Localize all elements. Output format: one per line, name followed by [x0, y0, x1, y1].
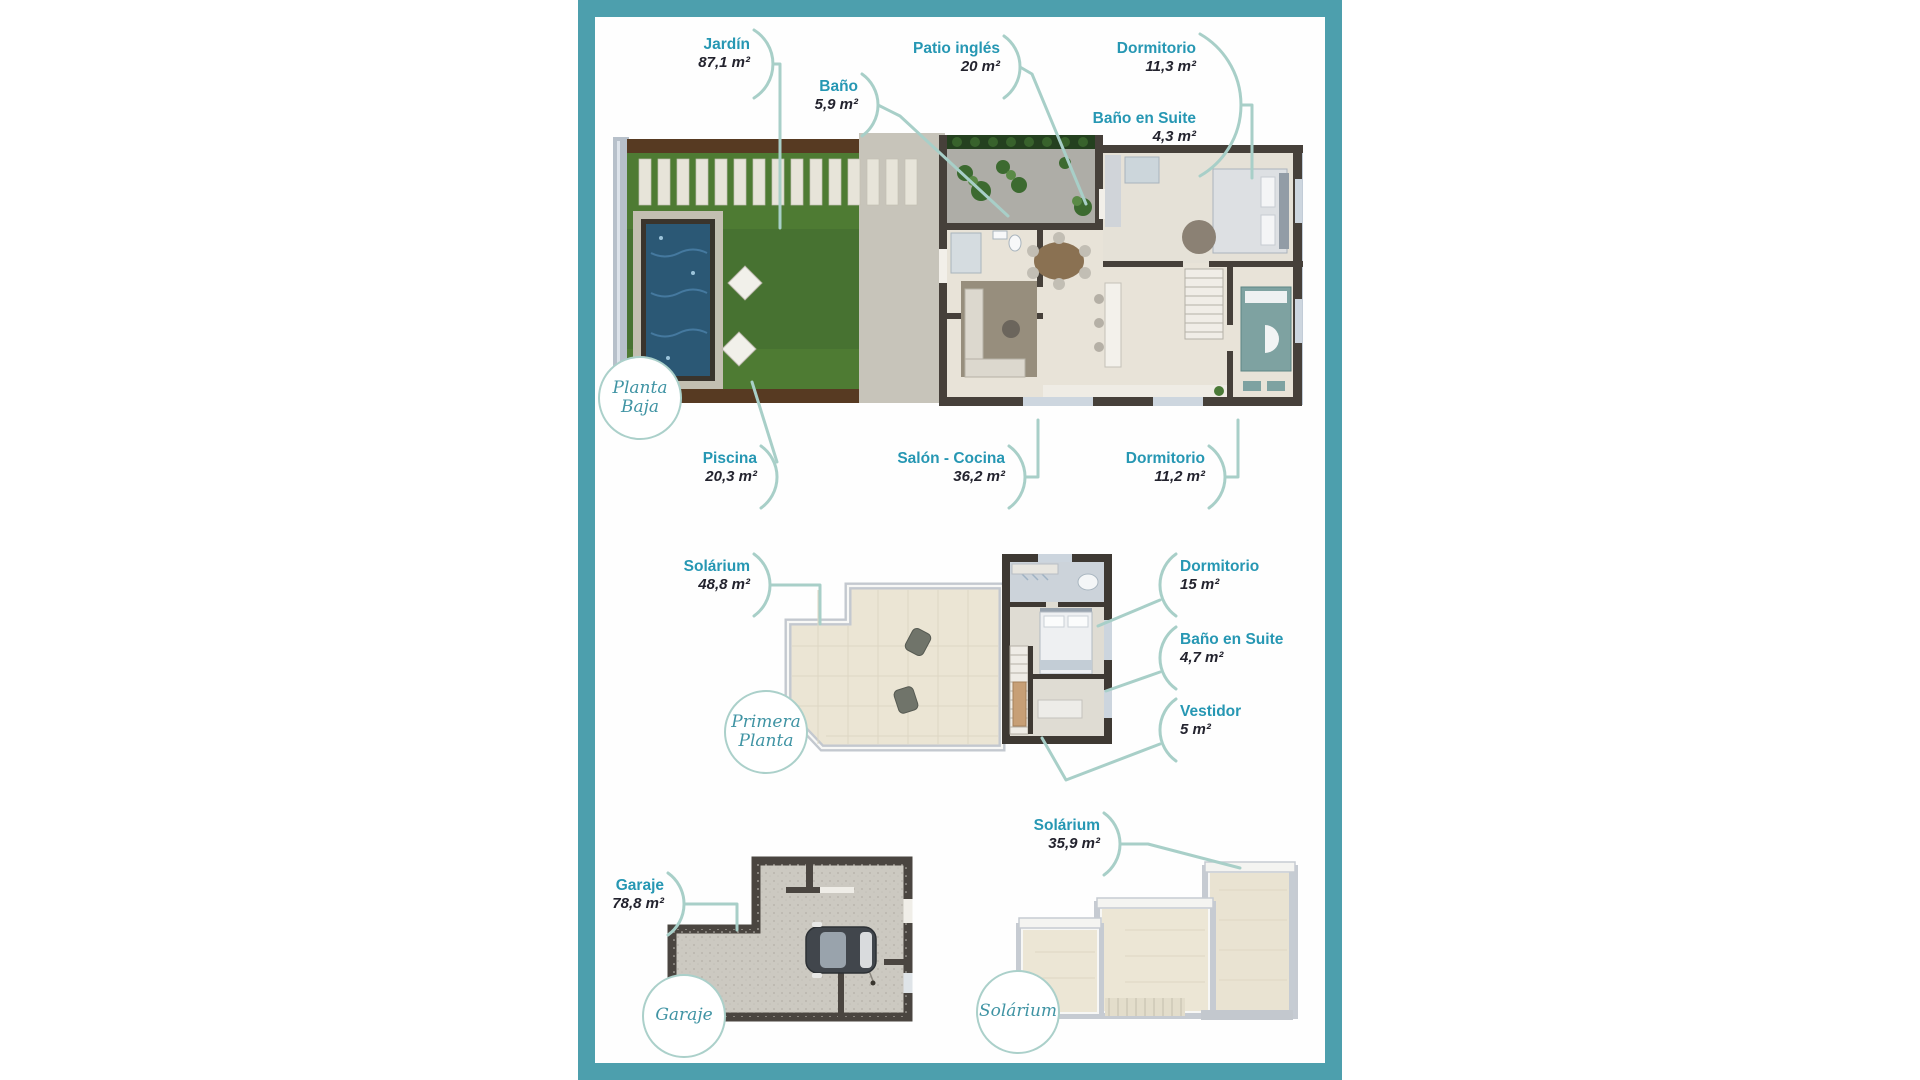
label-piscina-area: 20,3 m²: [617, 468, 757, 486]
upper-rooms: [1002, 554, 1112, 744]
label-solarium-488-name: Solárium: [610, 558, 750, 576]
label-solarium-488: Solárium 48,8 m²: [610, 558, 750, 594]
garden-path-slabs: [639, 159, 917, 205]
label-patio-ingles-name: Patio inglés: [840, 40, 1000, 58]
label-dormitorio-112: Dormitorio 11,2 m²: [1065, 450, 1205, 486]
label-garaje-name: Garaje: [524, 877, 664, 895]
primera-planta-floor-plan: [770, 550, 1115, 755]
label-bano: Baño 5,9 m²: [718, 78, 858, 114]
label-dormitorio-112-name: Dormitorio: [1065, 450, 1205, 468]
label-piscina: Piscina 20,3 m²: [617, 450, 757, 486]
solarium-terraces: [1019, 862, 1295, 1020]
label-vestidor: Vestidor 5 m²: [1180, 703, 1320, 739]
badge-planta-baja-line1: Planta: [613, 379, 668, 398]
label-dormitorio-15: Dormitorio 15 m²: [1180, 558, 1330, 594]
label-piscina-name: Piscina: [617, 450, 757, 468]
label-salon-cocina-name: Salón - Cocina: [845, 450, 1005, 468]
label-solarium-359-area: 35,9 m²: [960, 835, 1100, 853]
label-patio-ingles: Patio inglés 20 m²: [840, 40, 1000, 76]
label-bano-en-suite-47: Baño en Suite 4,7 m²: [1180, 631, 1340, 667]
label-dormitorio-15-name: Dormitorio: [1180, 558, 1330, 576]
label-bano-en-suite-47-name: Baño en Suite: [1180, 631, 1340, 649]
label-dormitorio-15-area: 15 m²: [1180, 576, 1330, 594]
label-garaje: Garaje 78,8 m²: [524, 877, 664, 913]
label-solarium-359: Solárium 35,9 m²: [960, 817, 1100, 853]
label-salon-cocina-area: 36,2 m²: [845, 468, 1005, 486]
badge-primera-planta-line2: Planta: [739, 732, 794, 751]
label-jardin: Jardín 87,1 m²: [610, 36, 750, 72]
label-bano-name: Baño: [718, 78, 858, 96]
badge-solarium: Solárium: [976, 970, 1060, 1054]
label-dormitorio-113-name: Dormitorio: [1056, 40, 1196, 58]
label-vestidor-name: Vestidor: [1180, 703, 1320, 721]
label-bano-en-suite-47-area: 4,7 m²: [1180, 649, 1340, 667]
badge-solarium-line1: Solárium: [979, 1002, 1057, 1021]
label-bano-en-suite-43-name: Baño en Suite: [1036, 110, 1196, 128]
label-solarium-488-area: 48,8 m²: [610, 576, 750, 594]
label-jardin-name: Jardín: [610, 36, 750, 54]
label-salon-cocina: Salón - Cocina 36,2 m²: [845, 450, 1005, 486]
label-solarium-359-name: Solárium: [960, 817, 1100, 835]
label-jardin-area: 87,1 m²: [610, 54, 750, 72]
label-vestidor-area: 5 m²: [1180, 721, 1320, 739]
badge-primera-planta: Primera Planta: [724, 690, 808, 774]
solarium-terrace: [788, 586, 1002, 748]
patio-ingles-area: [945, 135, 1101, 229]
label-dormitorio-113: Dormitorio 11,3 m²: [1056, 40, 1196, 76]
label-dormitorio-112-area: 11,2 m²: [1065, 468, 1205, 486]
label-garaje-area: 78,8 m²: [524, 895, 664, 913]
badge-planta-baja-line2: Baja: [621, 398, 659, 417]
label-bano-en-suite-43-area: 4,3 m²: [1036, 128, 1196, 146]
label-bano-en-suite-43: Baño en Suite 4,3 m²: [1036, 110, 1196, 146]
badge-garaje: Garaje: [642, 974, 726, 1058]
badge-planta-baja: Planta Baja: [598, 356, 682, 440]
badge-primera-planta-line1: Primera: [731, 713, 800, 732]
planta-baja-floor-plan: [613, 133, 1313, 418]
label-dormitorio-113-area: 11,3 m²: [1056, 58, 1196, 76]
label-bano-area: 5,9 m²: [718, 96, 858, 114]
label-patio-ingles-area: 20 m²: [840, 58, 1000, 76]
badge-garaje-line1: Garaje: [655, 1006, 712, 1025]
car-icon: [806, 922, 876, 978]
